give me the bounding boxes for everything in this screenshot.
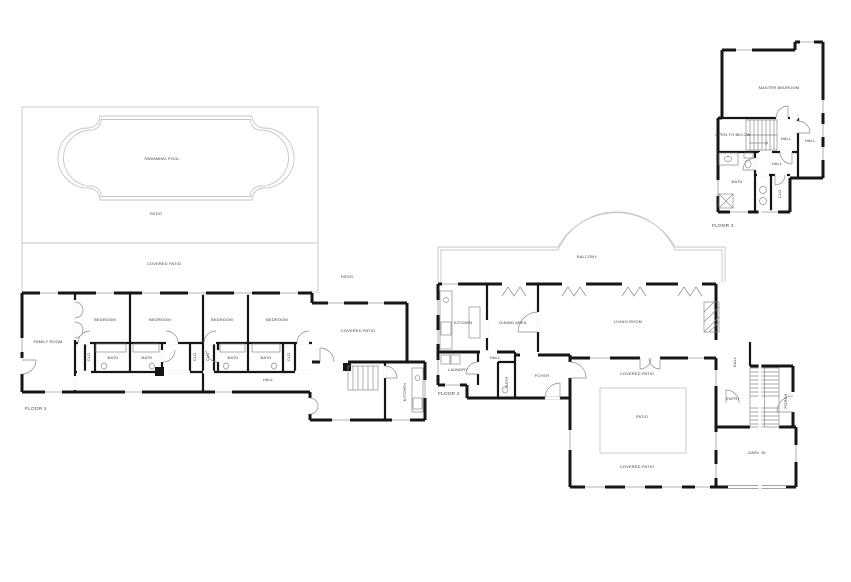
kitchen-appliance [413,398,422,409]
room-label-living-room: LIVING ROOM [614,319,642,324]
room-label-covered-patio-upper: COVERED PATIO [620,371,654,376]
floor-2-windows [438,284,796,487]
bath-sink [725,157,732,162]
room-label-bedroom-2: BEDROOM [149,317,171,322]
room-label-hall-stair: HALL [781,136,792,141]
room-label-closet-4: CLO [286,353,291,362]
balcony-outline-outer [438,213,725,282]
room-label-bath-1: BATH [108,355,119,360]
room-label-bath-3: BATH [228,355,239,360]
room-label-kitchen-f2: KITCHEN [454,320,473,325]
room-label-master-bedroom: MASTER BEDROOM [759,85,800,90]
stair-treads [750,368,779,427]
room-label-bath-f2: BATH [504,377,509,388]
floor-1-door-gaps [75,300,385,390]
room-label-open-to-below: OPEN TO BELOW [715,132,750,137]
floor-plan-drawing: SWIMMING POOL PATIO COVERED PATIO FAMILY… [0,0,851,582]
bathtub [133,344,159,352]
floor-2-interior-walls [478,284,750,398]
room-label-hall-side: HALL [732,356,737,367]
room-label-closet-f3: CLO [777,190,782,199]
room-label-closet-3: CLO [205,353,210,362]
floor-3-labels: MASTER BEDROOM OPEN TO BELOW HALL HALL H… [712,85,816,229]
room-label-covered-patio-top: COVERED PATIO [147,261,181,266]
floor-1-title: FLOOR 1 [25,406,47,412]
room-label-entry: ENTRY [726,396,740,401]
room-label-balcony: BALCONY [577,254,597,259]
toilet [150,363,155,369]
room-label-patio: PATIO [636,414,648,419]
room-label-swimming-pool: SWIMMING POOL [144,156,180,161]
floor-2-stairs [750,368,779,427]
room-label-garage: GARAGE [748,450,766,455]
floor-2-labels: BALCONY KITCHEN DINING AREA LIVING ROOM … [438,254,788,469]
room-label-hall-right: HALL [805,138,816,143]
floor-1-stairs [348,366,378,390]
room-label-family-room: FAMILY ROOM [33,339,62,344]
bathtub [220,344,245,352]
floor-2-plan: BALCONY KITCHEN DINING AREA LIVING ROOM … [438,212,796,489]
stair-treads [353,366,373,390]
kitchen-counter [412,368,423,412]
accordion-door-symbols [502,287,702,296]
floor-plan-canvas: SWIMMING POOL PATIO COVERED PATIO FAMILY… [0,0,851,582]
room-label-dining-area: DINING AREA [499,320,527,325]
bathtub [252,344,280,352]
chimney-post [155,367,164,376]
room-label-hall: HALL [263,377,274,382]
room-label-hall-mid: HALL [772,161,783,166]
toilet [224,363,229,369]
stair-direction-arrow [749,141,768,145]
room-label-closet-1: CLO [86,353,91,362]
bath-counter [719,153,738,165]
floor-3-plan: MASTER BEDROOM OPEN TO BELOW HALL HALL H… [712,42,823,582]
room-label-foyer: FOYER [535,373,550,378]
floor-3-door-gaps [755,118,798,582]
floor-1-plan: SWIMMING POOL PATIO COVERED PATIO FAMILY… [22,107,425,420]
chimney-post [343,363,351,371]
floor-2-balcony [438,212,725,453]
room-label-bedroom-4: BEDROOM [266,317,288,322]
room-label-bath-2: BATH [142,355,153,360]
shower-x [719,194,733,208]
kitchen-range [441,322,451,335]
kitchen-counter [440,291,452,349]
patio-inner-outline [600,388,686,453]
room-label-covered-patio-right: COVERED PATIO [341,328,375,333]
room-label-covered-patio-lower: COVERED PATIO [620,464,654,469]
floor-1-kitchen-fixtures [412,368,423,412]
room-label-closet-2: CLO [192,353,197,362]
room-label-bedroom-3: BEDROOM [211,317,233,322]
kitchen-sink [444,298,449,303]
room-label-patio-small: PATIO [341,274,353,279]
floor-2-wall-gaps [438,284,796,487]
bathtub [96,344,126,352]
room-label-bedroom-1: BEDROOM [94,317,116,322]
room-label-laundry: LAUNDRY [448,367,468,372]
toilet [272,363,277,369]
floor-3-title: FLOOR 3 [712,223,734,229]
toilet [102,363,107,369]
floor-1-labels: SWIMMING POOL PATIO COVERED PATIO FAMILY… [25,156,407,412]
room-label-patio-top: PATIO [150,211,162,216]
room-label-bath-f3: BATH [732,179,743,184]
room-label-porch: PORCH [783,393,788,408]
room-label-bath-4: BATH [261,355,272,360]
toilet-tank [744,153,753,158]
washer [441,355,450,364]
room-label-kitchen-f1: KITCHEN [402,383,407,402]
room-label-hall-top: HALL [490,355,501,360]
floor-2-title: FLOOR 2 [438,391,460,397]
kitchen-sink [415,376,420,381]
toilet [745,160,751,168]
floor-2-exterior-walls [438,284,796,487]
dryer [451,355,460,364]
